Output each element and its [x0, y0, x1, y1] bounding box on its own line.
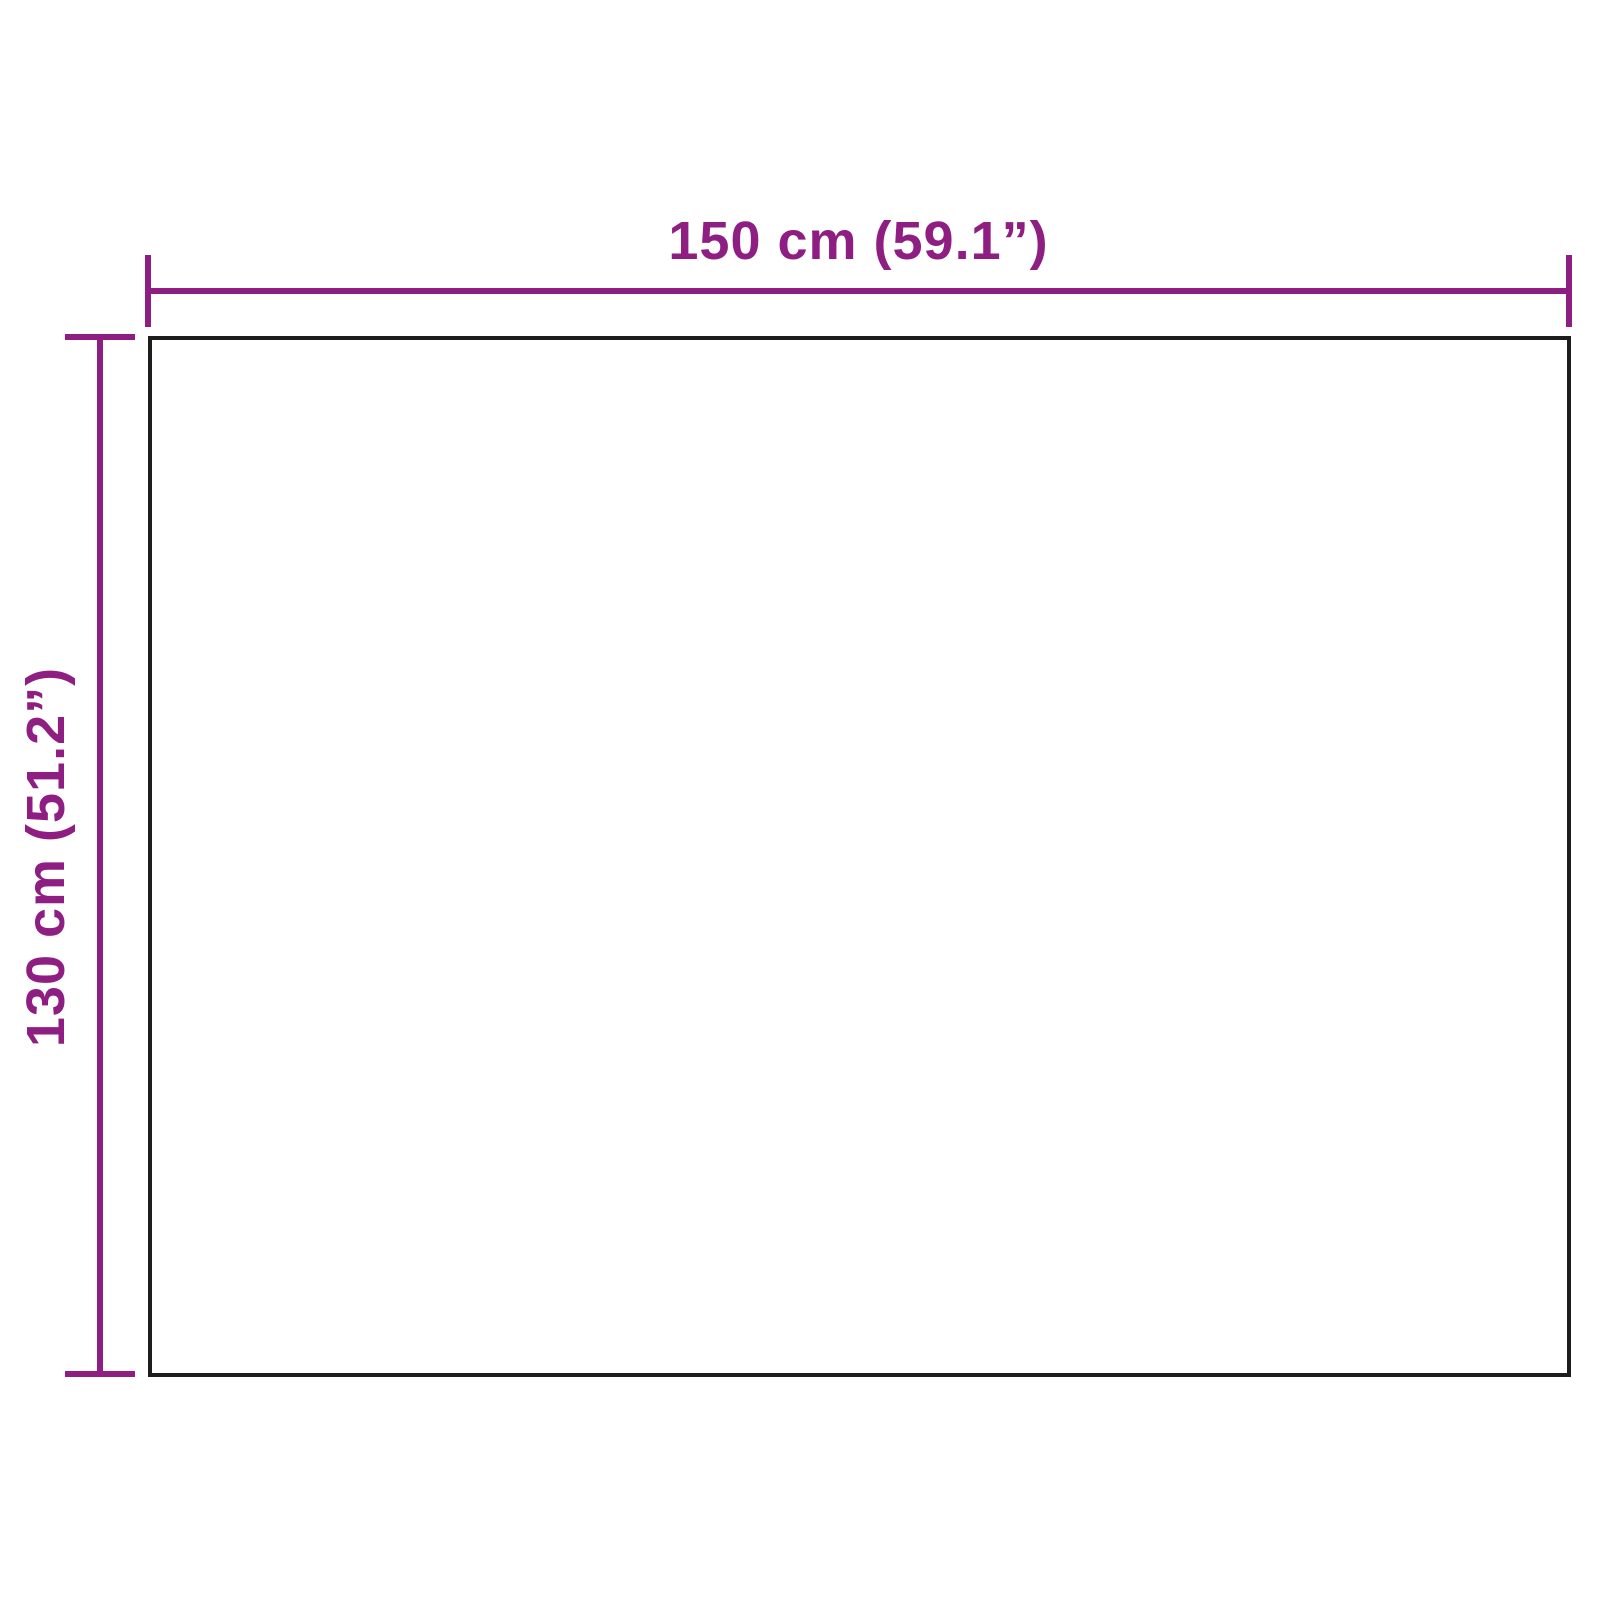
height-dimension-line [97, 337, 103, 1374]
height-dimension-tick-top [65, 334, 135, 340]
width-dimension-label: 150 cm (59.1”) [148, 208, 1569, 274]
width-dimension-line [148, 288, 1569, 294]
dimension-diagram: 150 cm (59.1”) 130 cm (51.2”) [0, 0, 1600, 1600]
height-dimension-tick-bottom [65, 1371, 135, 1377]
product-outline-rect [148, 336, 1571, 1377]
height-dimension-label: 130 cm (51.2”) [13, 557, 79, 1157]
